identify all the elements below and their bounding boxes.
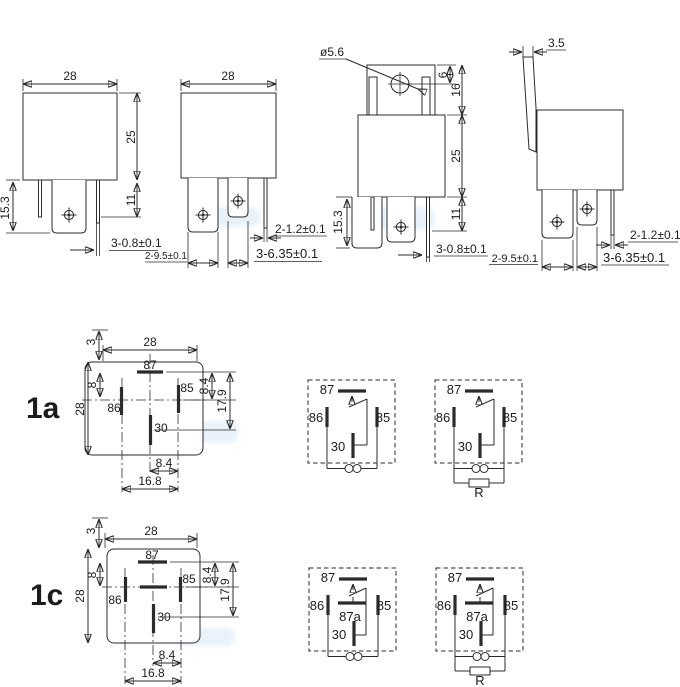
pin-label-85: 85 xyxy=(376,410,390,425)
dim-label-pin-thickness: 3-0.8±0.1 xyxy=(111,236,162,250)
form-label-1a: 1a xyxy=(26,392,60,425)
pin-label-87a: 87a xyxy=(466,609,488,624)
pin-label-30: 30 xyxy=(332,627,346,642)
relay-body xyxy=(537,110,623,190)
drawing-canvas: 28 25 11 15.3 3- xyxy=(0,0,680,687)
pin-label-30: 30 xyxy=(459,627,473,642)
dim-label-hole-offset: 6 xyxy=(436,71,450,78)
dim-label-height: 25 xyxy=(449,149,463,163)
schematic-1c-resistor: 87 87a 86 85 30 R xyxy=(436,568,523,687)
dim-pin-wide: 2-9.5±0.1 xyxy=(489,240,573,271)
dim-label-tab-height: 16 xyxy=(449,83,463,97)
pin-label-87: 87 xyxy=(320,382,334,397)
relay-body xyxy=(23,93,117,180)
pin-label-30: 30 xyxy=(154,421,168,435)
pin-label-87: 87 xyxy=(321,570,335,585)
dim-label-right-b: 17.9 xyxy=(215,389,229,413)
pin-label-30: 30 xyxy=(458,439,472,454)
dim-label-pin-thin: 2-1.2±0.1 xyxy=(275,222,326,236)
view-front-2: 28 2-1.2±0.1 2-9.5±0.1 xyxy=(145,69,327,268)
form-label-1c: 1c xyxy=(30,579,63,612)
dim-label-row: 8 xyxy=(85,381,99,388)
dim-width: 28 xyxy=(23,69,117,91)
relay-pins xyxy=(39,180,100,233)
dim-label-bottom-b: 16.8 xyxy=(138,474,162,488)
schematic-1a-plain: 87 86 85 30 xyxy=(308,380,395,473)
resistor-label: R xyxy=(475,673,484,687)
pin-label-86: 86 xyxy=(436,410,450,425)
view-side-tab: ø5.6 6 16 25 15. xyxy=(319,45,488,262)
dim-label-right-a: 8.4 xyxy=(200,566,214,583)
dim-bottom-a: 8.4 xyxy=(153,648,181,663)
dim-label-pin-mid: 3-6.35±0.1 xyxy=(603,250,665,265)
dim-width-top: 28 xyxy=(105,524,197,548)
dim-edge-offset: 3 xyxy=(84,518,108,548)
dim-label-pin-mid: 3-6.35±0.1 xyxy=(256,246,318,261)
dim-label-width: 28 xyxy=(143,335,157,349)
pin-label-30: 30 xyxy=(331,439,345,454)
relay-body xyxy=(181,93,276,178)
dim-label-edge: 3 xyxy=(84,338,98,345)
dim-label-height: 28 xyxy=(73,589,87,603)
dim-label-pin-depth: 11 xyxy=(124,193,138,206)
dim-row-offset: 8 xyxy=(85,563,100,586)
dim-label-right-b: 17.9 xyxy=(218,578,232,602)
dim-bottom-b: 16.8 xyxy=(125,666,181,681)
pin-label-86: 86 xyxy=(107,401,121,415)
dim-label-hole: ø5.6 xyxy=(320,45,344,59)
pin-label-86: 86 xyxy=(309,410,323,425)
dim-pin-thickness: 3-0.8±0.1 xyxy=(398,242,488,262)
dim-label-pin-thickness: 3-0.8±0.1 xyxy=(436,242,487,256)
dim-width: 28 xyxy=(181,69,276,91)
dim-label-pin-wide: 2-9.5±0.1 xyxy=(145,251,188,262)
schematic-1a-resistor: 87 86 85 30 R xyxy=(435,380,522,500)
dim-label-width: 28 xyxy=(63,69,77,83)
dim-edge-offset: 3 xyxy=(84,330,108,360)
dim-label-pin-height: 15.3 xyxy=(331,210,345,234)
dim-label-bottom-b: 16.8 xyxy=(141,666,165,680)
dim-label-width: 28 xyxy=(144,524,158,538)
dim-label-height: 28 xyxy=(73,402,87,416)
view-front: 28 25 11 15.3 3- xyxy=(0,69,162,256)
dim-label-pin-wide: 2-9.5±0.1 xyxy=(492,253,538,265)
pin-label-87: 87 xyxy=(448,570,462,585)
dim-bracket-width: 3.5 xyxy=(509,36,566,58)
pin-label-85: 85 xyxy=(377,598,391,613)
pin-label-87a: 87a xyxy=(339,609,361,624)
dim-label-right-a: 8.4 xyxy=(197,377,211,394)
dim-label-edge: 3 xyxy=(84,527,98,534)
bottom-view-1a: 1a 3 28 28 8 xyxy=(26,330,236,492)
pin-label-87: 87 xyxy=(447,382,461,397)
dim-height: 25 xyxy=(447,115,467,197)
pin-label-85: 85 xyxy=(180,381,194,395)
pin-label-85: 85 xyxy=(504,598,518,613)
bottom-view-1c: 1c 3 28 28 8 xyxy=(30,518,239,684)
view-side-bracket: 3.5 2-1.2±0.1 2-9.5±0.1 xyxy=(489,36,680,271)
dim-label-bracket-width: 3.5 xyxy=(548,36,565,50)
dim-label-row: 8 xyxy=(85,571,99,578)
dim-label-pin-thin: 2-1.2±0.1 xyxy=(630,228,680,242)
dim-pin-height: 15.3 xyxy=(0,180,50,233)
relay-pins xyxy=(542,190,614,238)
dim-pin-thin: 2-1.2±0.1 xyxy=(250,222,327,242)
pin-label-86: 86 xyxy=(437,598,451,613)
pin-label-86: 86 xyxy=(310,598,324,613)
dim-height-left: 28 xyxy=(73,549,88,643)
dim-label-pin-depth: 11 xyxy=(449,207,463,220)
pin-label-86: 86 xyxy=(108,593,122,607)
dim-height: 25 xyxy=(119,93,141,180)
schematic-1c-plain: 87 87a 86 85 30 xyxy=(309,568,396,661)
pin-label-85: 85 xyxy=(503,410,517,425)
relay-body xyxy=(358,115,445,197)
dim-label-width: 28 xyxy=(221,69,235,83)
dim-bottom-a: 8.4 xyxy=(150,456,178,471)
pin-label-87: 87 xyxy=(143,358,157,372)
dim-pin-depth: 11 xyxy=(432,197,467,231)
relay-technical-drawing: 28 25 11 15.3 3- xyxy=(0,0,680,687)
mounting-bracket xyxy=(523,57,536,152)
dim-label-pin-height: 15.3 xyxy=(0,196,12,220)
dim-pin-height: 15.3 xyxy=(331,197,352,248)
dim-label-bottom-a: 8.4 xyxy=(156,456,173,470)
scan-artifacts xyxy=(4,0,252,26)
dim-label-height: 25 xyxy=(124,130,138,144)
dim-pin-depth: 11 xyxy=(101,183,141,217)
pin-label-85: 85 xyxy=(182,572,196,586)
resistor-label: R xyxy=(474,485,483,500)
pin-label-87: 87 xyxy=(145,548,159,562)
relay-base xyxy=(85,362,203,455)
dim-label-bottom-a: 8.4 xyxy=(159,648,176,662)
dim-pin-thin: 2-1.2±0.1 xyxy=(596,228,680,249)
dim-bottom-b: 16.8 xyxy=(122,474,178,489)
